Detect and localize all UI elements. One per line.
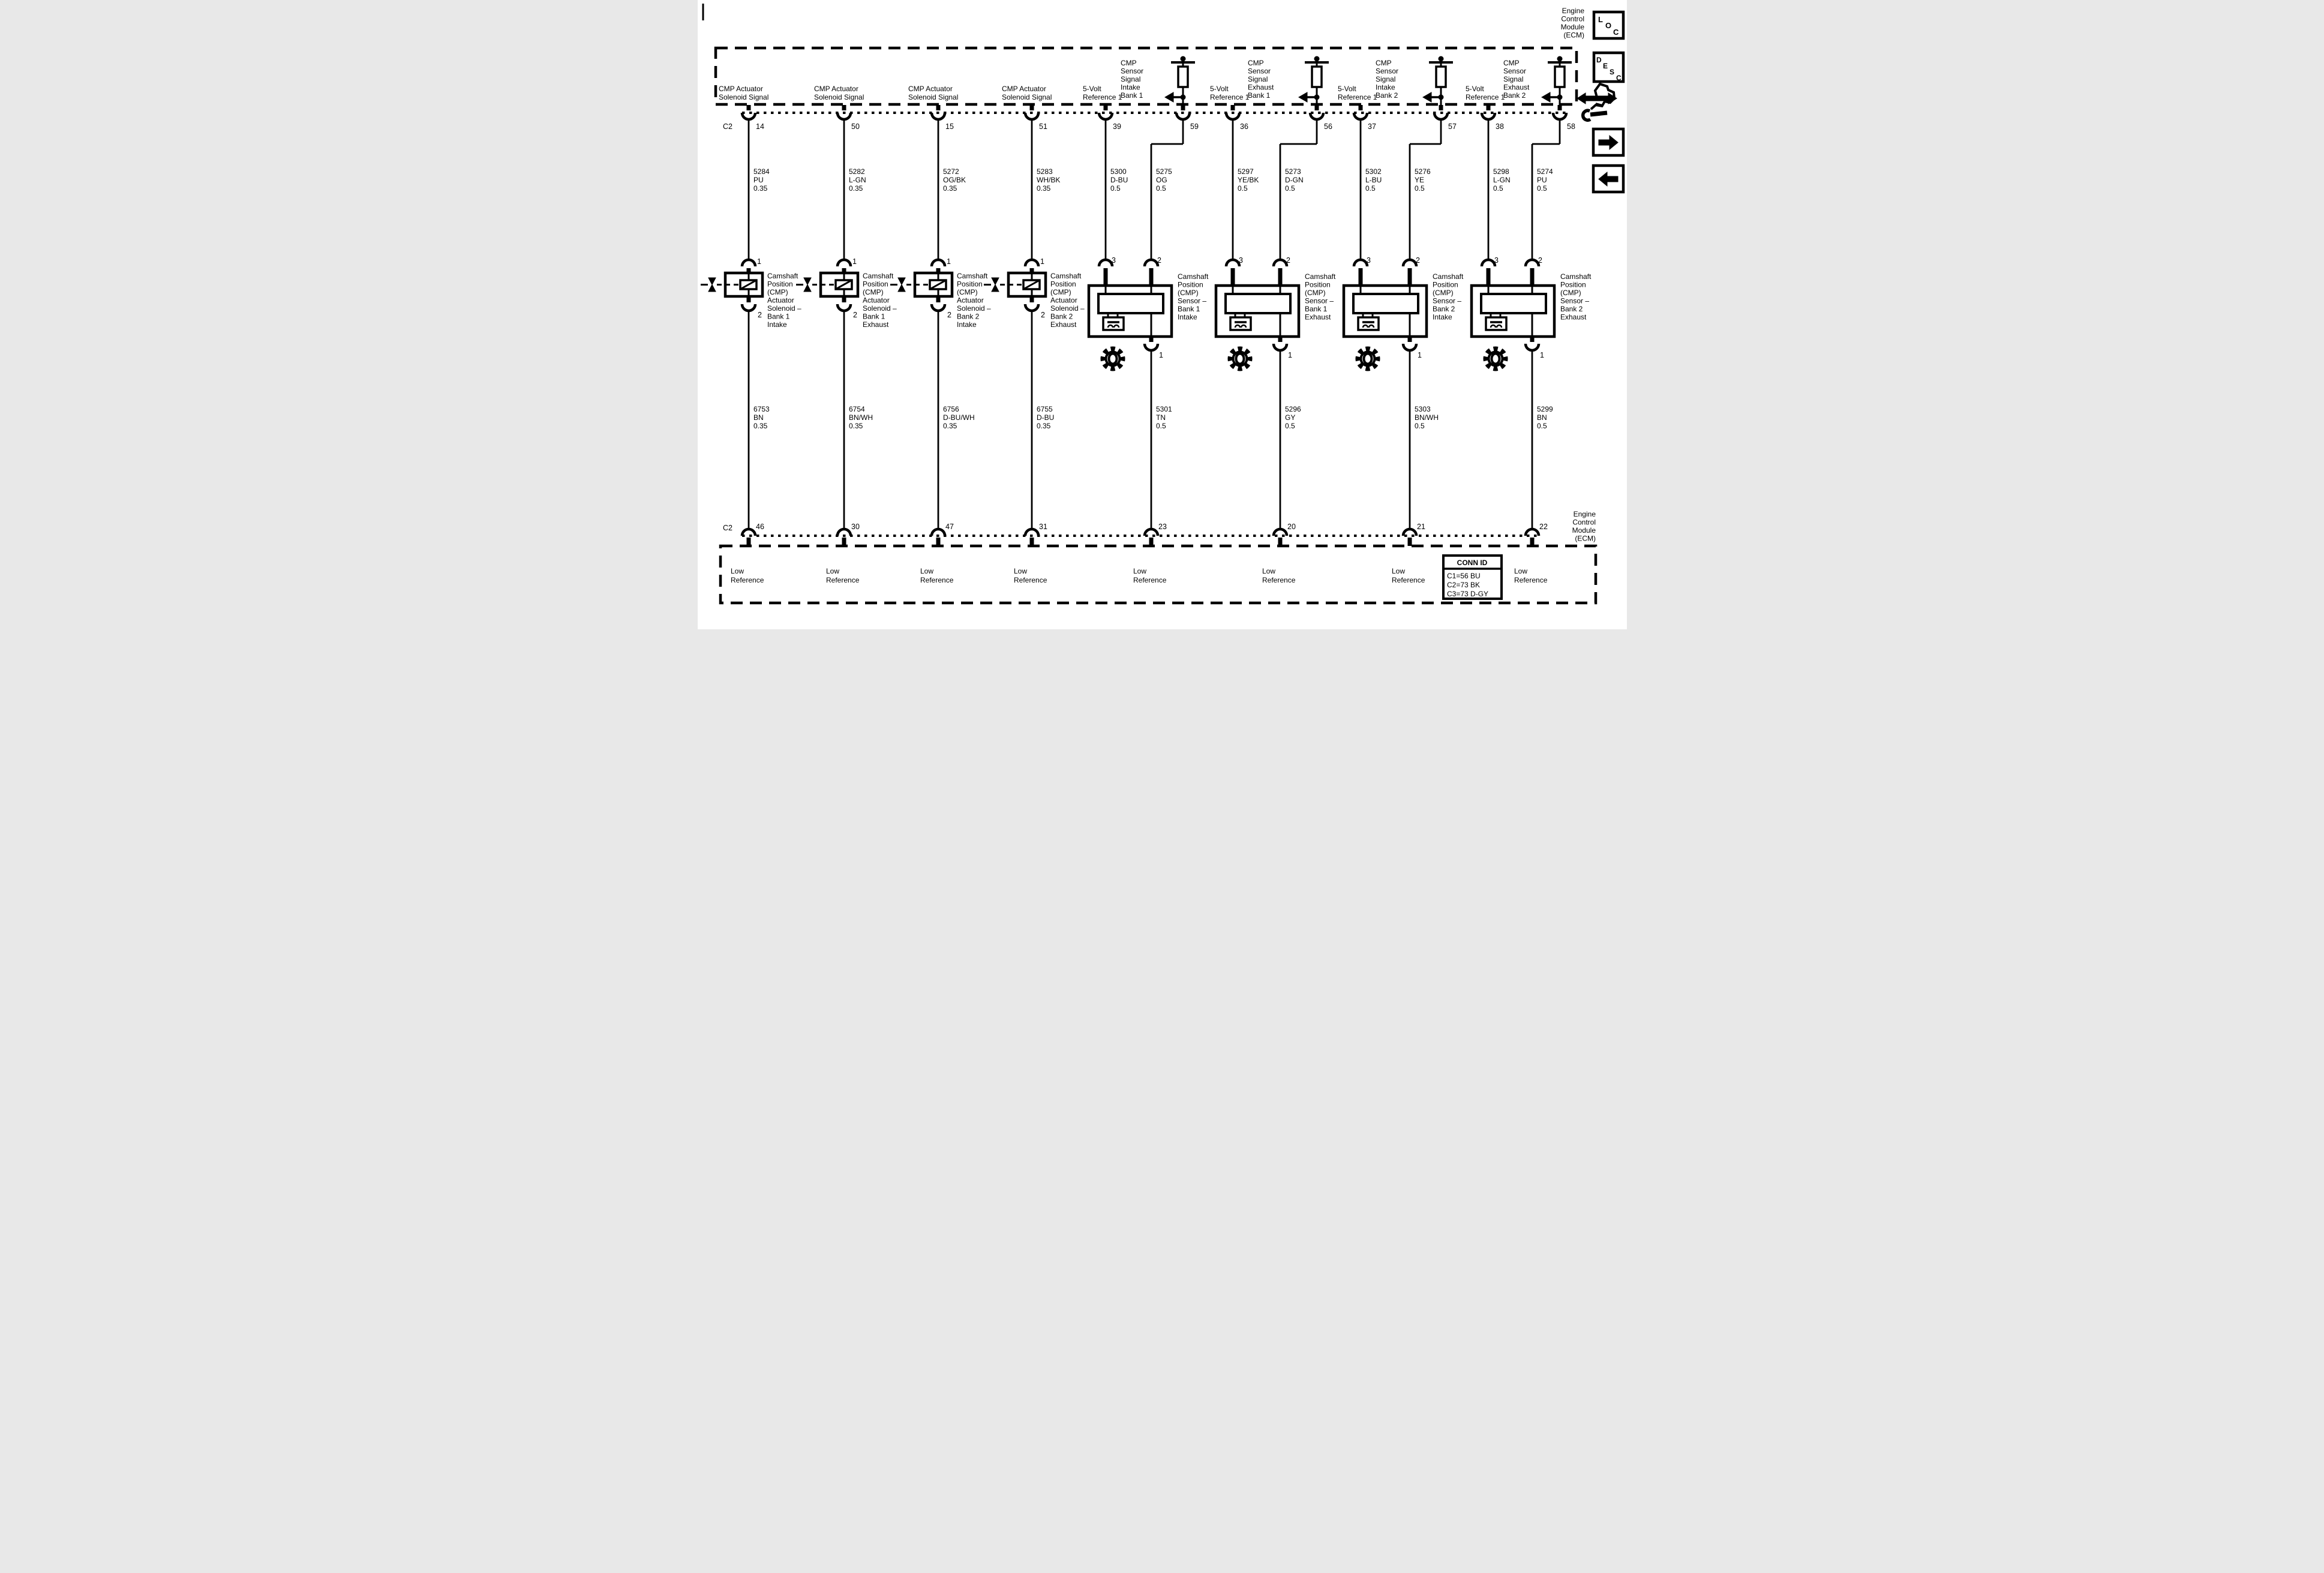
nav-arrow-left-icon <box>1599 172 1618 186</box>
signal-name: Sensor <box>1248 67 1271 76</box>
wire-label: 0.5 <box>1285 184 1295 193</box>
component-label: Bank 2 <box>1433 305 1455 313</box>
component-label: Actuator <box>767 296 794 305</box>
pin-number: 23 <box>1158 523 1167 531</box>
wire-label: 0.5 <box>1110 184 1121 193</box>
wire-label: TN <box>1156 413 1166 422</box>
valve-bowtie-icon <box>708 278 716 285</box>
low-reference-label: Low <box>1014 567 1027 575</box>
component-label: Bank 1 <box>863 313 885 321</box>
pin-number: 57 <box>1448 122 1457 131</box>
component-label: Solenoid – <box>767 304 801 313</box>
wire-label: 0.5 <box>1537 422 1547 430</box>
wire-label: 5302 <box>1365 167 1382 176</box>
sensor-inner-block <box>1353 294 1418 313</box>
pin-number: 39 <box>1113 122 1121 131</box>
desc-icon: E <box>1603 62 1608 70</box>
pin-number: 51 <box>1039 122 1047 131</box>
component-label: Intake <box>1433 313 1452 322</box>
low-reference-label: Low <box>1392 567 1405 575</box>
low-reference-label: Reference <box>1262 576 1296 584</box>
wire-label: 5299 <box>1537 405 1553 413</box>
wire-label: 0.5 <box>1493 184 1503 193</box>
wire-label: BN <box>753 413 764 422</box>
signal-name: CMP <box>1248 59 1264 67</box>
component-label: Exhaust <box>1560 313 1587 322</box>
component-label: Bank 2 <box>1050 313 1073 321</box>
desc-icon: C <box>1616 74 1622 82</box>
wire-label: D-BU <box>1110 176 1128 184</box>
c2-label: C2 <box>723 122 732 131</box>
component-label: Solenoid – <box>957 304 991 313</box>
hall-element-icon <box>1486 317 1506 330</box>
component-label: Position <box>1178 281 1203 289</box>
pin-number: 2 <box>1157 256 1161 265</box>
valve-bowtie-icon <box>804 285 811 292</box>
ecm-top-label: Module <box>1560 23 1584 31</box>
pin-number: 59 <box>1190 122 1199 131</box>
junction-dot <box>1438 95 1443 100</box>
signal-name: Reference 1 <box>1466 93 1505 101</box>
low-reference-label: Reference <box>1514 576 1548 584</box>
component-label: Camshaft <box>863 272 894 280</box>
pin-number: 47 <box>945 523 954 531</box>
pin-number: 1 <box>1540 351 1544 359</box>
pin-number: 31 <box>1039 523 1047 531</box>
wire-label: 5301 <box>1156 405 1172 413</box>
signal-name: Bank 1 <box>1248 91 1271 100</box>
wire-label: 0.5 <box>1537 184 1547 193</box>
pin-number: 1 <box>1040 257 1044 266</box>
signal-name: CMP Actuator <box>908 85 953 93</box>
conn-id-title: CONN ID <box>1457 559 1487 567</box>
wire-label: PU <box>753 176 764 184</box>
signal-name: Bank 2 <box>1503 91 1526 100</box>
low-reference-label: Reference <box>920 576 954 584</box>
low-reference-label: Low <box>1133 567 1146 575</box>
ecm-top-label: Control <box>1561 15 1584 23</box>
signal-name: CMP Actuator <box>719 85 763 93</box>
wire-label: D-GN <box>1285 176 1304 184</box>
device-pin-terminal <box>1526 260 1539 266</box>
signal-name: CMP <box>1503 59 1520 67</box>
wire-label: 0.35 <box>1037 422 1051 430</box>
component-label: (CMP) <box>863 288 884 296</box>
device-pin-terminal <box>837 304 851 311</box>
wire-label: 5282 <box>849 167 865 176</box>
junction-dot <box>1180 95 1185 100</box>
conn-id-row: C3=73 D-GY <box>1447 590 1488 598</box>
wire-label: 0.5 <box>1156 184 1166 193</box>
low-reference-label: Low <box>920 567 933 575</box>
component-label: Bank 2 <box>1560 305 1583 313</box>
wire-label: 5303 <box>1415 405 1431 413</box>
component-label: Intake <box>767 320 787 329</box>
signal-name: Sensor <box>1376 67 1398 76</box>
component-label: Position <box>957 280 983 289</box>
component-label: Sensor – <box>1433 297 1461 305</box>
wire-label: 0.35 <box>753 184 768 193</box>
wire-label: L-BU <box>1365 176 1382 184</box>
signal-name: 5-Volt <box>1210 85 1229 93</box>
device-pin-terminal <box>1354 260 1367 266</box>
gear-icon <box>1236 354 1244 364</box>
wire-label: PU <box>1537 176 1547 184</box>
component-label: Actuator <box>1050 296 1077 305</box>
sensor-inner-block <box>1481 294 1546 313</box>
component-label: Exhaust <box>1050 320 1077 329</box>
component-label: Actuator <box>863 296 890 305</box>
sensor-inner-block <box>1226 294 1290 313</box>
signal-name: Reference 1 <box>1083 93 1122 101</box>
component-label: Bank 1 <box>1305 305 1328 313</box>
signal-arrow-icon <box>1542 92 1550 102</box>
pin-number: 21 <box>1417 523 1425 531</box>
junction-dot <box>1314 95 1319 100</box>
wire-label: 5297 <box>1238 167 1254 176</box>
signal-name: 5-Volt <box>1466 85 1484 93</box>
signal-name: Signal <box>1503 75 1523 83</box>
hall-element-icon <box>1103 317 1124 330</box>
pullup-resistor <box>1312 67 1322 87</box>
pin-number: 46 <box>756 523 764 531</box>
component-label: Solenoid – <box>1050 304 1085 313</box>
wire-label: 5276 <box>1415 167 1431 176</box>
pullup-resistor <box>1436 67 1446 87</box>
component-label: (CMP) <box>957 288 978 296</box>
wire-label: YE <box>1415 176 1424 184</box>
signal-name: Reference 1 <box>1338 93 1377 101</box>
component-label: Exhaust <box>1305 313 1331 322</box>
wire-label: BN <box>1537 413 1547 422</box>
signal-name: Exhaust <box>1503 83 1530 92</box>
component-label: Solenoid – <box>863 304 897 313</box>
low-reference-label: Low <box>826 567 839 575</box>
wire-label: 0.5 <box>1285 422 1295 430</box>
wire-label: 5275 <box>1156 167 1172 176</box>
loc-icon: O <box>1605 21 1611 30</box>
supply-tap-dot <box>1438 56 1443 62</box>
wire-label: 5283 <box>1037 167 1053 176</box>
ecm-bottom-label: (ECM) <box>1575 535 1596 543</box>
wire-label: 0.35 <box>849 422 863 430</box>
valve-bowtie-icon <box>992 278 999 285</box>
pin-number: 3 <box>1112 256 1116 265</box>
gear-icon <box>1491 354 1499 364</box>
signal-name: Exhaust <box>1248 83 1274 92</box>
wire-label: 6754 <box>849 405 865 413</box>
component-label: Camshaft <box>1305 272 1336 281</box>
wire-label: 0.35 <box>943 422 957 430</box>
device-pin-terminal <box>742 260 755 266</box>
valve-bowtie-icon <box>708 285 716 292</box>
component-label: Camshaft <box>1050 272 1082 280</box>
wire-label: D-BU/WH <box>943 413 975 422</box>
component-label: Position <box>1050 280 1076 289</box>
pin-number: 14 <box>756 122 764 131</box>
loc-icon: C <box>1613 28 1619 37</box>
wire-label: 5298 <box>1493 167 1509 176</box>
component-label: (CMP) <box>1050 288 1071 296</box>
component-label: Actuator <box>957 296 984 305</box>
pin-number: 2 <box>1041 311 1045 319</box>
loc-icon: L <box>1598 15 1603 24</box>
wire-label: BN/WH <box>849 413 873 422</box>
pullup-resistor <box>1178 67 1188 87</box>
component-label: (CMP) <box>1305 289 1326 297</box>
component-label: Position <box>1433 281 1458 289</box>
ecm-top-label: Engine <box>1562 7 1584 15</box>
pin-number: 1 <box>757 257 761 266</box>
pin-number: 58 <box>1567 122 1575 131</box>
wire-label: 0.5 <box>1156 422 1166 430</box>
pin-number: 2 <box>758 311 762 319</box>
hall-element-icon <box>1358 317 1379 330</box>
harness-outline-icon <box>1591 105 1603 109</box>
pin-number: 1 <box>1288 351 1292 359</box>
signal-name: CMP Actuator <box>814 85 858 93</box>
supply-tap-dot <box>1314 56 1319 62</box>
component-label: Sensor – <box>1560 297 1589 305</box>
component-label: Bank 2 <box>957 313 980 321</box>
hall-element-icon <box>1230 317 1251 330</box>
conn-id-row: C1=56 BU <box>1447 572 1481 580</box>
device-pin-terminal <box>1274 260 1287 266</box>
pin-number: 3 <box>1239 256 1243 265</box>
wire-label: OG/BK <box>943 176 966 184</box>
pin-number: 56 <box>1324 122 1332 131</box>
wire-label: BN/WH <box>1415 413 1439 422</box>
wire-label: 5300 <box>1110 167 1127 176</box>
signal-name: 5-Volt <box>1338 85 1356 93</box>
low-reference-label: Low <box>731 567 744 575</box>
device-pin-terminal <box>1226 260 1239 266</box>
device-pin-terminal <box>1482 260 1495 266</box>
low-reference-label: Reference <box>1133 576 1167 584</box>
signal-name: Sensor <box>1503 67 1526 76</box>
device-pin-terminal <box>1526 344 1539 350</box>
signal-name: 5-Volt <box>1083 85 1101 93</box>
ecm-bottom-label: Control <box>1572 518 1596 527</box>
wire-label: D-BU <box>1037 413 1054 422</box>
sensor-inner-block <box>1098 294 1163 313</box>
signal-name: Bank 1 <box>1121 91 1143 100</box>
component-label: (CMP) <box>1560 289 1581 297</box>
component-label: Exhaust <box>863 320 889 329</box>
low-reference-label: Reference <box>731 576 764 584</box>
wire-label: OG <box>1156 176 1167 184</box>
signal-name: Sensor <box>1121 67 1143 76</box>
pin-number: 1 <box>1159 351 1163 359</box>
pin-number: 50 <box>851 122 860 131</box>
ecm-bottom-label: Module <box>1572 526 1596 535</box>
signal-name: Signal <box>1121 75 1140 83</box>
wire-label: WH/BK <box>1037 176 1060 184</box>
pin-number: 2 <box>1286 256 1290 265</box>
component-label: Camshaft <box>1178 272 1209 281</box>
pin-number: 1 <box>1418 351 1422 359</box>
low-reference-label: Reference <box>826 576 860 584</box>
wire-label: 6753 <box>753 405 770 413</box>
signal-name: CMP Actuator <box>1002 85 1046 93</box>
wire-label: L-GN <box>1493 176 1511 184</box>
component-label: Bank 1 <box>767 313 790 321</box>
wire-label: 0.5 <box>1238 184 1248 193</box>
component-label: Camshaft <box>1433 272 1464 281</box>
wire-label: 0.35 <box>943 184 957 193</box>
wire-label: 5284 <box>753 167 770 176</box>
wire-label: 5273 <box>1285 167 1301 176</box>
nav-arrow-right-icon <box>1599 136 1618 149</box>
component-label: Sensor – <box>1178 297 1206 305</box>
valve-bowtie-icon <box>898 285 905 292</box>
wrench-icon <box>1590 113 1607 115</box>
device-pin-terminal <box>742 304 755 311</box>
device-pin-terminal <box>1145 344 1158 350</box>
component-label: Intake <box>957 320 977 329</box>
pin-number: 36 <box>1240 122 1248 131</box>
ecm-top-label: (ECM) <box>1563 31 1584 40</box>
wrench-icon <box>1583 110 1590 120</box>
junction-dot <box>1557 95 1562 100</box>
supply-tap-dot <box>1180 56 1185 62</box>
component-label: Position <box>767 280 793 289</box>
wire-label: 6755 <box>1037 405 1053 413</box>
component-label: Position <box>1305 281 1331 289</box>
pin-number: 30 <box>851 523 860 531</box>
valve-bowtie-icon <box>804 278 811 285</box>
component-label: Bank 1 <box>1178 305 1200 313</box>
component-label: (CMP) <box>767 288 788 296</box>
signal-name: Bank 2 <box>1376 91 1398 100</box>
signal-name: Signal <box>1376 75 1395 83</box>
wire-label: 0.5 <box>1415 422 1425 430</box>
c2-label: C2 <box>723 524 732 532</box>
component-label: Camshaft <box>767 272 798 280</box>
wire-label: 0.5 <box>1415 184 1425 193</box>
pin-number: 2 <box>853 311 857 319</box>
low-reference-label: Low <box>1262 567 1275 575</box>
pin-number: 3 <box>1367 256 1371 265</box>
pin-number: 3 <box>1494 256 1499 265</box>
signal-name: Solenoid Signal <box>814 93 864 101</box>
pin-number: 2 <box>947 311 951 319</box>
low-reference-label: Reference <box>1392 576 1425 584</box>
wire-label: GY <box>1285 413 1295 422</box>
valve-bowtie-icon <box>898 278 905 285</box>
component-label: Position <box>1560 281 1586 289</box>
signal-name: CMP <box>1376 59 1392 67</box>
device-pin-terminal <box>1403 260 1416 266</box>
device-pin-terminal <box>1274 344 1287 350</box>
desc-icon: D <box>1596 56 1602 64</box>
signal-arrow-icon <box>1165 92 1173 102</box>
device-pin-terminal <box>1145 260 1158 266</box>
signal-name: Solenoid Signal <box>1002 93 1052 101</box>
component-label: Camshaft <box>1560 272 1592 281</box>
wire-label: L-GN <box>849 176 866 184</box>
wire-label: 5272 <box>943 167 959 176</box>
wire-label: 0.35 <box>849 184 863 193</box>
signal-name: Intake <box>1376 83 1395 92</box>
component-label: Intake <box>1178 313 1197 322</box>
ecm-bottom-label: Engine <box>1573 510 1596 518</box>
wiring-diagram-page: EngineEngineControlControlModuleModule(E… <box>698 0 1627 629</box>
device-pin-terminal <box>932 260 945 266</box>
signal-name: Solenoid Signal <box>719 93 768 101</box>
signal-name: CMP <box>1121 59 1137 67</box>
wire-label: 5274 <box>1537 167 1553 176</box>
pullup-resistor <box>1555 67 1565 87</box>
supply-tap-dot <box>1557 56 1562 62</box>
device-pin-terminal <box>1025 260 1038 266</box>
device-pin-terminal <box>1403 344 1416 350</box>
device-pin-terminal <box>1025 304 1038 311</box>
gear-icon <box>1109 354 1116 364</box>
pin-number: 22 <box>1539 523 1548 531</box>
wire-label: 0.35 <box>1037 184 1051 193</box>
low-reference-label: Reference <box>1014 576 1047 584</box>
signal-name: Reference 1 <box>1210 93 1250 101</box>
low-reference-label: Low <box>1514 567 1527 575</box>
pin-number: 37 <box>1368 122 1376 131</box>
pin-number: 2 <box>1538 256 1542 265</box>
component-label: Camshaft <box>957 272 988 280</box>
wire-label: 0.35 <box>753 422 768 430</box>
pin-number: 15 <box>945 122 954 131</box>
wire-label: 5296 <box>1285 405 1301 413</box>
wire-label: YE/BK <box>1238 176 1259 184</box>
signal-name: Intake <box>1121 83 1140 92</box>
valve-bowtie-icon <box>992 285 999 292</box>
device-pin-terminal <box>932 304 945 311</box>
gear-icon <box>1364 354 1371 364</box>
signal-name: Signal <box>1248 75 1268 83</box>
signal-arrow-icon <box>1423 92 1431 102</box>
pin-number: 20 <box>1287 523 1296 531</box>
desc-icon: S <box>1610 68 1614 76</box>
device-pin-terminal <box>837 260 851 266</box>
component-label: (CMP) <box>1433 289 1454 297</box>
signal-arrow-icon <box>1299 92 1307 102</box>
wire-label: 0.5 <box>1365 184 1376 193</box>
signal-name: Solenoid Signal <box>908 93 958 101</box>
conn-id-row: C2=73 BK <box>1447 581 1480 589</box>
component-label: (CMP) <box>1178 289 1199 297</box>
pin-number: 2 <box>1416 256 1420 265</box>
wire-label: 6756 <box>943 405 959 413</box>
pin-number: 1 <box>947 257 951 266</box>
cmp-wiring-diagram: EngineEngineControlControlModuleModule(E… <box>698 0 1627 629</box>
device-pin-terminal <box>1099 260 1112 266</box>
component-label: Sensor – <box>1305 297 1334 305</box>
pin-number: 1 <box>852 257 857 266</box>
pin-number: 38 <box>1496 122 1504 131</box>
component-label: Position <box>863 280 888 289</box>
